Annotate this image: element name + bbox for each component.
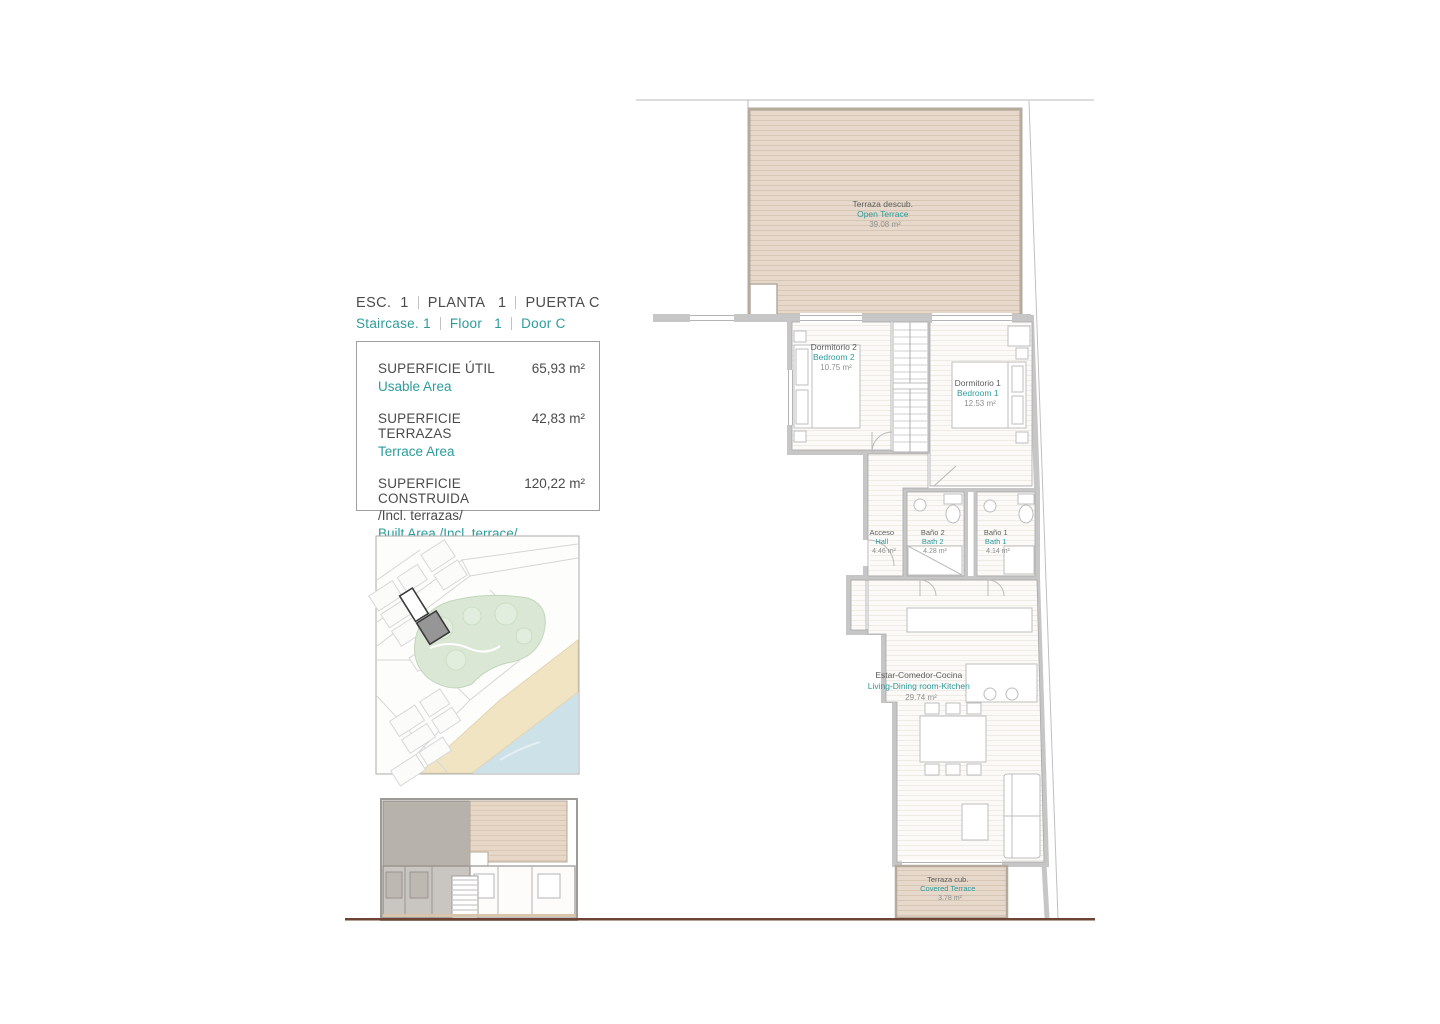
keyplan-neighbour-terrace <box>383 801 470 866</box>
dining-table <box>920 703 986 775</box>
coffee-table <box>962 804 988 840</box>
base-line <box>345 918 1095 921</box>
closet <box>1008 326 1030 346</box>
plan-graphics: Terraza descub. Open Terrace 39.08 m² Do… <box>0 0 1440 1024</box>
floorplan-sheet: ESC. 1PLANTA 1PUERTA C Staircase. 1Floor… <box>0 0 1440 1024</box>
keyplan-stair <box>452 876 478 918</box>
sofa <box>1004 774 1040 858</box>
key-plan <box>381 799 577 920</box>
site-location-map <box>365 536 579 786</box>
main-floor-plan: Terraza descub. Open Terrace 39.08 m² Do… <box>636 100 1094 919</box>
stairwell <box>893 322 928 452</box>
